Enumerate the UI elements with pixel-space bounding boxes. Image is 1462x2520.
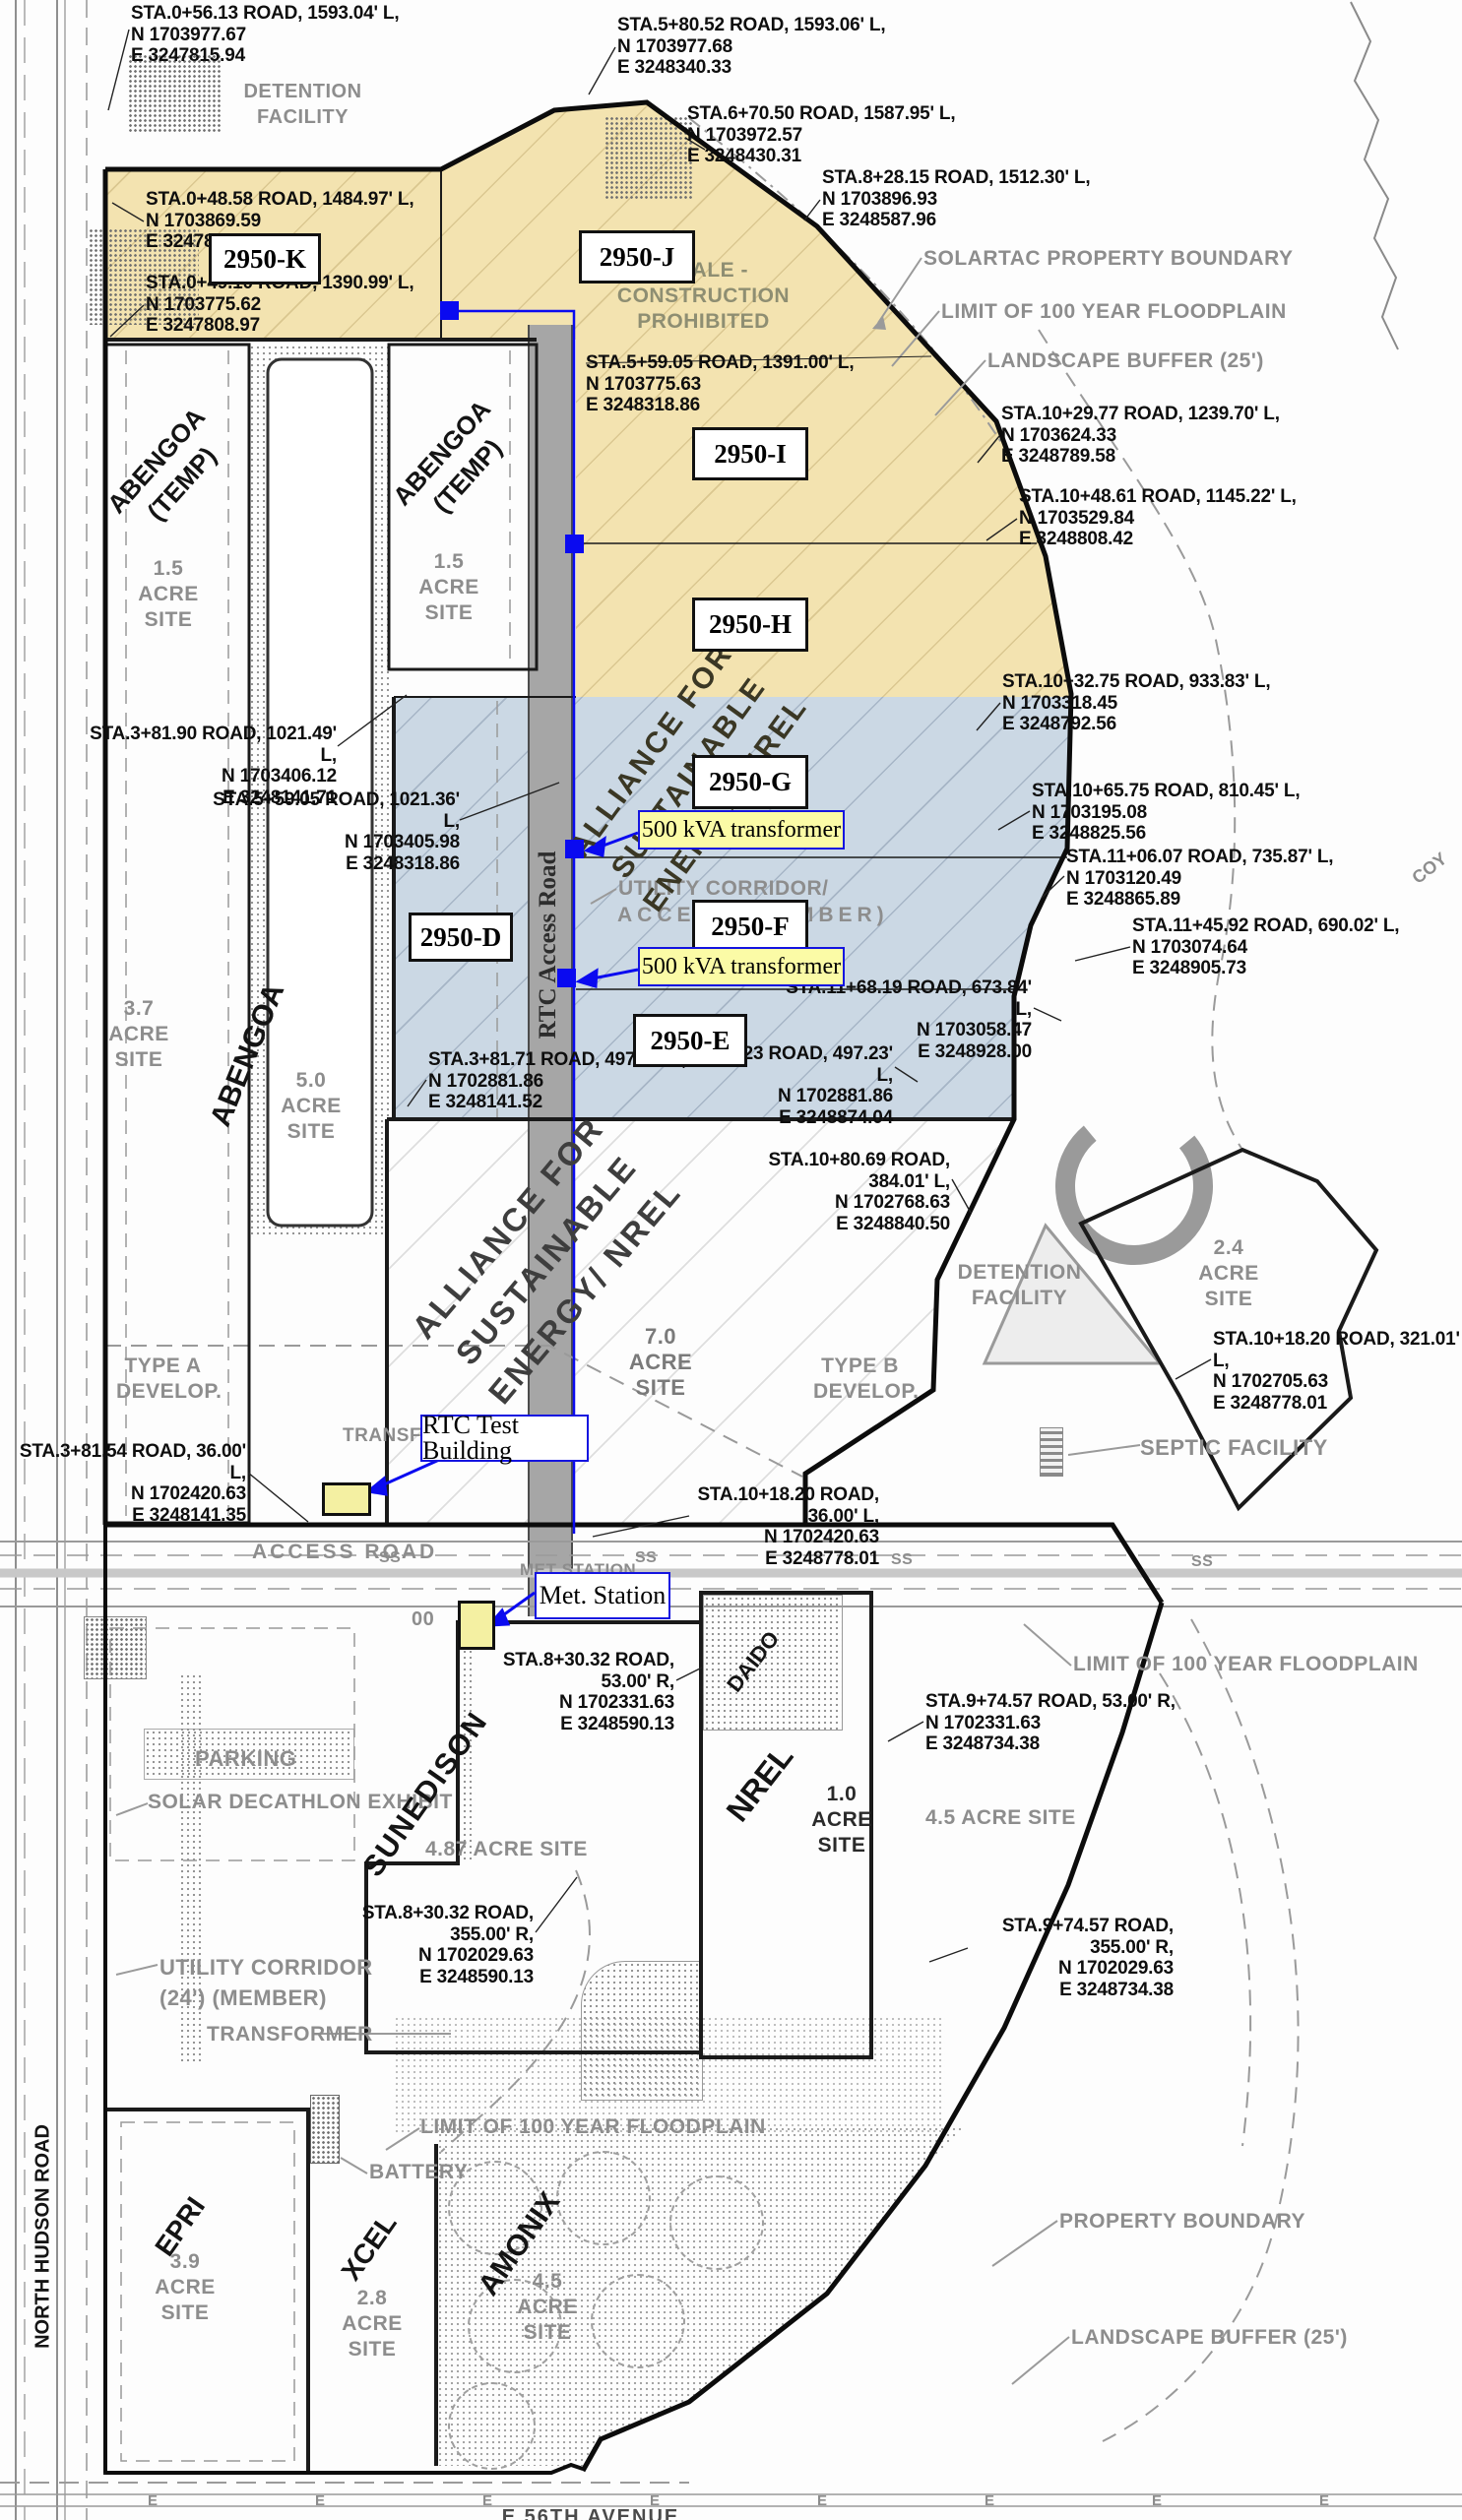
acreage-label: 4.87 ACRE SITE: [425, 1837, 588, 1862]
electric-mark: E: [1152, 2488, 1163, 2514]
sta-note: STA.11+06.07 ROAD, 735.87' L, N 1703120.…: [1066, 847, 1333, 911]
electric-mark: E: [817, 2488, 828, 2514]
street-name-e56th: E 56TH AVENUE: [473, 2504, 709, 2520]
septic-facility-label: SEPTIC FACILITY: [1140, 1435, 1328, 1461]
acreage-label: 2.8 ACRE SITE: [337, 2286, 408, 2362]
electric-mark: E: [315, 2488, 326, 2514]
detention-facility-label: DETENTION FACILITY: [943, 1260, 1096, 1311]
floodplain-label: LIMIT OF 100 YEAR FLOODPLAIN: [941, 299, 1287, 325]
acreage-label: 7.0 ACRE SITE: [620, 1324, 701, 1401]
sta-note: STA.11+45.92 ROAD, 690.02' L, N 1703074.…: [1132, 915, 1399, 979]
acreage-label: 4.5 ACRE SITE: [925, 1805, 1076, 1831]
transformer-callout: 500 kVA transformer: [638, 947, 845, 986]
sta-note: STA.10+32.75 ROAD, 933.83' L, N 1703318.…: [1002, 671, 1270, 735]
development-type-label: TYPE A DEVELOP.: [116, 1354, 210, 1405]
sta-note: STA.5+80.52 ROAD, 1593.06' L, N 1703977.…: [617, 15, 885, 79]
landscape-buffer-label: LANDSCAPE BUFFER (25'): [987, 348, 1264, 374]
acreage-label: 1.5 ACRE SITE: [413, 549, 484, 626]
sewer-mark: SS: [1191, 1549, 1213, 1575]
acreage-label: 2.4 ACRE SITE: [1193, 1235, 1264, 1312]
parcel-box-2950-G: 2950-G: [692, 755, 808, 809]
sewer-mark: SS: [891, 1547, 913, 1573]
parcel-box-2950-J: 2950-J: [579, 230, 695, 283]
parcel-box-2950-F: 2950-F: [692, 900, 808, 954]
parking-stall-numbers: 00: [412, 1606, 434, 1632]
rtc-test-building-footprint: [322, 1482, 371, 1516]
met-station-footprint: [458, 1601, 495, 1650]
rtc-access-road-label: RTC Access Road: [532, 851, 565, 1039]
sewer-mark: SS: [379, 1545, 401, 1571]
utility-corridor-lower-label: UTILITY CORRIDOR (24') (MEMBER): [159, 1952, 373, 2013]
floodplain-label: LIMIT OF 100 YEAR FLOODPLAIN: [1073, 1652, 1419, 1677]
transformer-label: TRANSFORMER: [207, 2022, 373, 2047]
sta-note: STA.3+81.54 ROAD, 36.00' L, N 1702420.63…: [12, 1441, 246, 1526]
north-hudson-road-label: NORTH HUDSON ROAD: [31, 2124, 57, 2349]
sta-note: STA.10+18.20 ROAD, 36.00' L, N 1702420.6…: [645, 1484, 879, 1569]
electric-mark: E: [1319, 2488, 1330, 2514]
sta-note: STA.10+48.61 ROAD, 1145.22' L, N 1703529…: [1019, 486, 1297, 550]
sta-note: STA.6+70.50 ROAD, 1587.95' L, N 1703972.…: [687, 103, 955, 167]
battery-label: BATTERY: [369, 2160, 468, 2185]
acreage-label: 4.5 ACRE SITE: [512, 2269, 583, 2346]
sta-note: STA.5+59.05 ROAD, 1391.00' L, N 1703775.…: [586, 352, 854, 416]
sta-note: STA.9+74.57 ROAD, 53.00' R, N 1702331.63…: [925, 1691, 1176, 1755]
sewer-mark: SS: [635, 1545, 657, 1571]
transformer-marker: [565, 535, 584, 553]
sta-note: STA.10+29.77 ROAD, 1239.70' L, N 1703624…: [1001, 404, 1280, 468]
sta-note: STA.8+28.15 ROAD, 1512.30' L, N 1703896.…: [822, 167, 1090, 231]
transformer-marker: [440, 301, 459, 320]
acreage-label: 1.5 ACRE SITE: [133, 556, 204, 633]
solartac-boundary-label: SOLARTAC PROPERTY BOUNDARY: [923, 246, 1293, 272]
sta-note: STA.10+65.75 ROAD, 810.45' L, N 1703195.…: [1032, 781, 1300, 845]
floodplain-label: LIMIT OF 100 YEAR FLOODPLAIN: [420, 2114, 766, 2140]
electric-mark: E: [148, 2488, 159, 2514]
sta-note: STA.10+18.20 ROAD, 321.01' L, N 1702705.…: [1213, 1329, 1462, 1414]
acreage-label: 5.0 ACRE SITE: [276, 1068, 347, 1145]
acreage-label: 1.0 ACRE SITE: [810, 1782, 873, 1858]
development-type-label: TYPE B DEVELOP.: [813, 1354, 907, 1405]
transformer-callout: 500 kVA transformer: [638, 810, 845, 850]
electric-mark: E: [985, 2488, 995, 2514]
parcel-box-2950-E: 2950-E: [633, 1014, 747, 1067]
sta-note: STA.0+56.13 ROAD, 1593.04' L, N 1703977.…: [131, 3, 399, 67]
rtc-test-building-callout: RTC Test Building: [420, 1415, 589, 1462]
property-boundary-label: PROPERTY BOUNDARY: [1059, 2209, 1305, 2235]
parcel-box-2950-K: 2950-K: [209, 233, 321, 284]
parking-label: PARKING: [195, 1746, 296, 1772]
sta-note: STA.10+80.69 ROAD, 384.01' L, N 1702768.…: [704, 1150, 950, 1234]
access-road-label: ACCESS ROAD: [252, 1540, 437, 1565]
landscape-buffer-label: LANDSCAPE BUFFER (25'): [1071, 2325, 1348, 2351]
parcel-box-2950-H: 2950-H: [692, 598, 808, 652]
parcel-box-2950-D: 2950-D: [409, 913, 513, 962]
transformer-marker: [565, 840, 584, 858]
sta-note: STA.9+74.57 ROAD, 355.00' R, N 1702029.6…: [943, 1916, 1174, 2000]
acreage-label: 3.9 ACRE SITE: [150, 2249, 221, 2326]
transformer-marker: [557, 969, 576, 987]
acreage-label: 3.7 ACRE SITE: [103, 996, 174, 1073]
site-plan-map: STA.0+56.13 ROAD, 1593.04' L, N 1703977.…: [0, 0, 1462, 2520]
met-station-callout: Met. Station: [535, 1572, 670, 1619]
sta-note: STA.5+59.05 ROAD, 1021.36' L, N 1703405.…: [212, 789, 460, 874]
detention-facility-label: DETENTION FACILITY: [236, 79, 369, 130]
parcel-box-2950-I: 2950-I: [692, 427, 808, 480]
